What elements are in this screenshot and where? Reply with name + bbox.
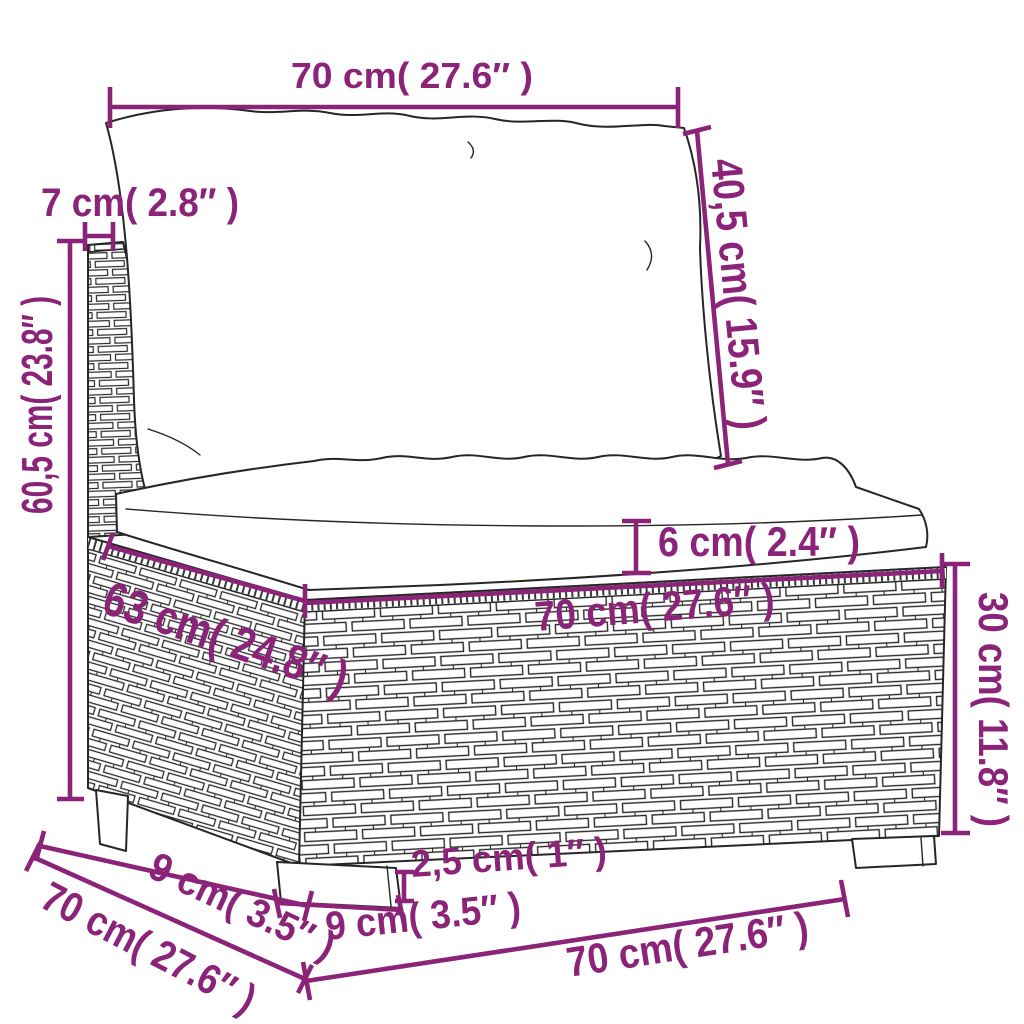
dim-seat-cushion-thickness: 6 cm( 2.4″ ) (622, 518, 860, 573)
sofa-dimension-diagram: 70 cm( 27.6″ ) 7 cm( 2.8″ ) 40,5 cm( 15.… (0, 0, 1024, 1024)
dimension-label: 70 cm( 27.6″ ) (563, 903, 811, 986)
dim-base-height: 30 cm( 11.8″ ) (941, 564, 1017, 833)
dimension-label: 7 cm( 2.8″ ) (41, 181, 239, 225)
dimension-label: 60,5 cm( 23.8″ ) (13, 296, 62, 514)
dimension-label: 6 cm( 2.4″ ) (658, 518, 860, 565)
dimension-label: 30 cm( 11.8″ ) (970, 592, 1017, 827)
dimension-label: 70 cm( 27.6″ ) (291, 55, 533, 96)
sofa-line-art (88, 108, 946, 908)
back-left-leg (96, 790, 128, 851)
dimension-diagram-canvas: 70 cm( 27.6″ ) 7 cm( 2.8″ ) 40,5 cm( 15.… (0, 0, 1024, 1024)
dim-overall-height: 60,5 cm( 23.8″ ) (13, 241, 84, 799)
